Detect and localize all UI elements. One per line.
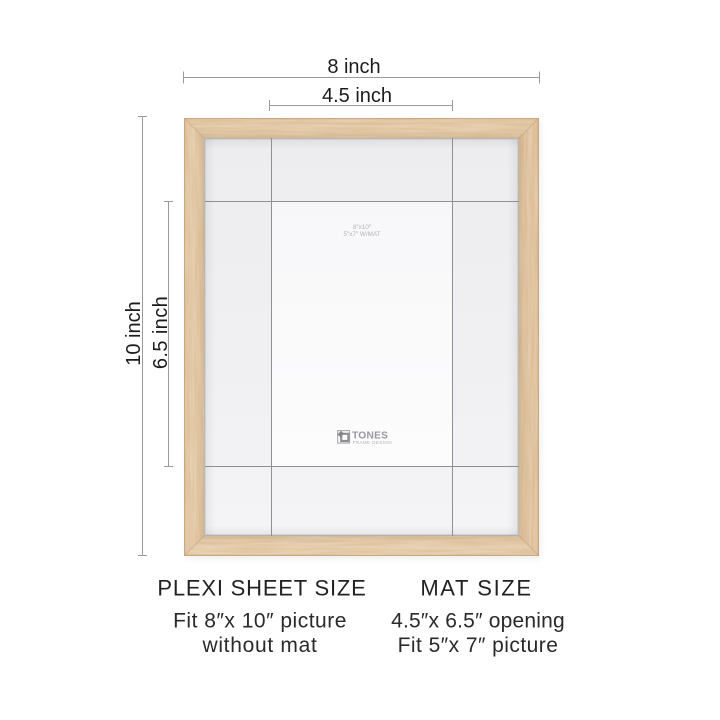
svg-text:Fit 8″x 10″ picture: Fit 8″x 10″ picture — [173, 610, 347, 633]
svg-text:Fit 5″x 7″ picture: Fit 5″x 7″ picture — [398, 634, 559, 657]
svg-text:FRAME DESIGN: FRAME DESIGN — [353, 440, 392, 445]
svg-text:6.5 inch: 6.5 inch — [150, 296, 172, 369]
svg-text:without mat: without mat — [201, 634, 317, 657]
svg-text:4.5″x 6.5″ opening: 4.5″x 6.5″ opening — [391, 610, 565, 633]
svg-text:4.5 inch: 4.5 inch — [322, 85, 392, 107]
svg-text:5″x7″ W/MAT: 5″x7″ W/MAT — [344, 231, 381, 238]
svg-text:MAT SIZE: MAT SIZE — [420, 576, 532, 601]
svg-text:PLEXI SHEET SIZE: PLEXI SHEET SIZE — [157, 576, 366, 601]
svg-text:8 inch: 8 inch — [327, 56, 380, 78]
svg-text:10 inch: 10 inch — [123, 301, 145, 366]
svg-text:8″x10″: 8″x10″ — [353, 224, 372, 231]
